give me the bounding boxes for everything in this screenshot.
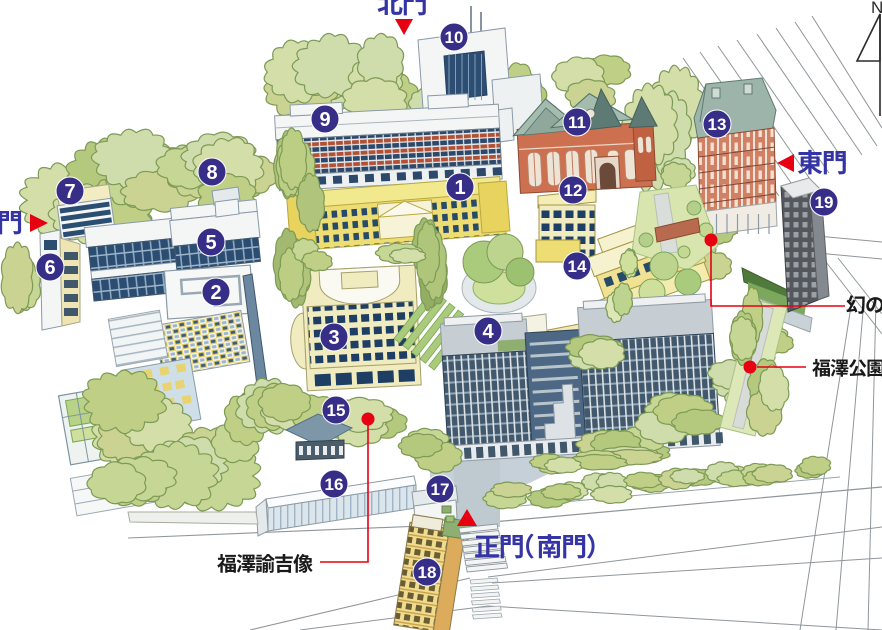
svg-text:1: 1 bbox=[454, 177, 465, 199]
svg-text:18: 18 bbox=[418, 563, 437, 582]
svg-text:19: 19 bbox=[815, 193, 834, 212]
svg-text:6: 6 bbox=[44, 257, 55, 279]
svg-text:7: 7 bbox=[64, 181, 75, 203]
svg-text:9: 9 bbox=[319, 109, 330, 131]
svg-text:12: 12 bbox=[564, 181, 583, 200]
svg-text:4: 4 bbox=[482, 321, 494, 343]
svg-text:11: 11 bbox=[568, 113, 586, 132]
svg-text:2: 2 bbox=[210, 282, 221, 304]
svg-text:17: 17 bbox=[431, 480, 450, 499]
svg-text:8: 8 bbox=[206, 162, 217, 184]
svg-text:5: 5 bbox=[205, 232, 216, 254]
svg-text:14: 14 bbox=[568, 257, 587, 276]
svg-text:10: 10 bbox=[445, 28, 464, 47]
svg-text:13: 13 bbox=[708, 115, 727, 134]
svg-text:N: N bbox=[871, 0, 882, 17]
svg-text:3: 3 bbox=[328, 327, 339, 349]
svg-text:15: 15 bbox=[327, 401, 346, 420]
svg-text:16: 16 bbox=[325, 475, 344, 494]
